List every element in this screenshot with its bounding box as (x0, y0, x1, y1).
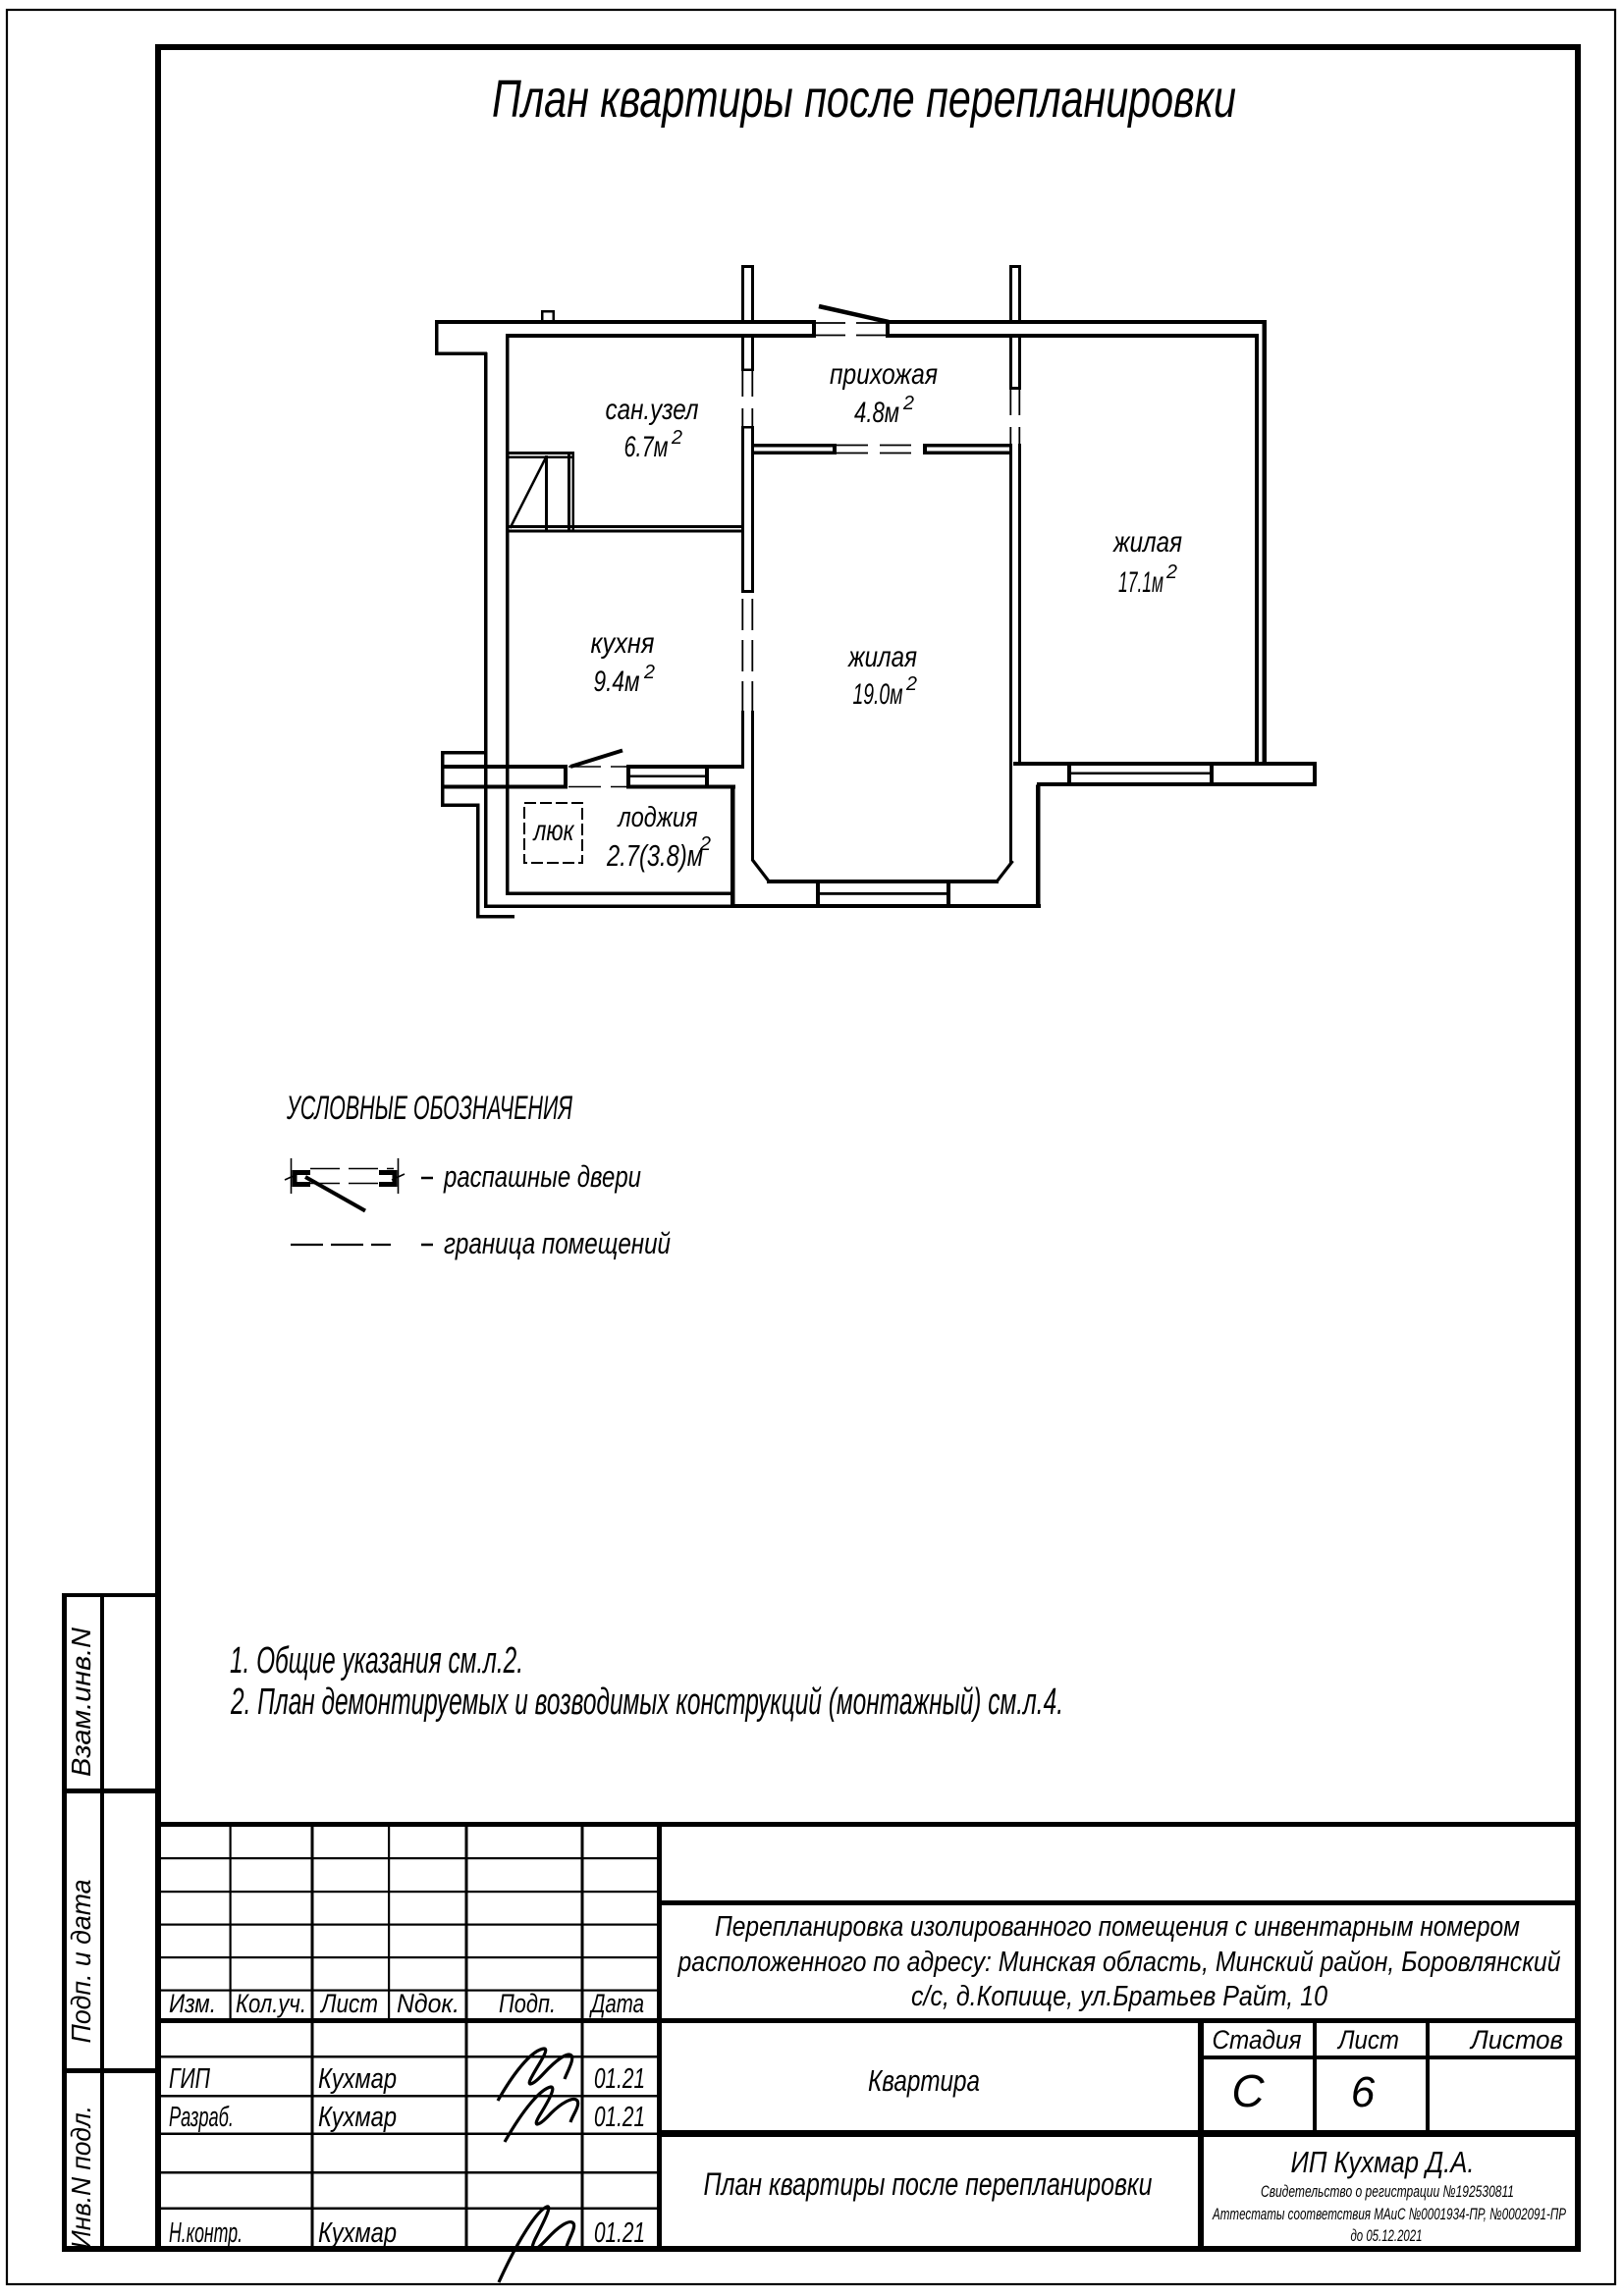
svg-text:01.21: 01.21 (594, 2217, 645, 2249)
svg-text:граница помещений: граница помещений (444, 1226, 671, 1260)
svg-text:План квартиры после перепланир: План квартиры после перепланировки (492, 70, 1236, 129)
svg-text:Н.контр.: Н.контр. (169, 2217, 243, 2249)
svg-text:С: С (1231, 2065, 1265, 2116)
svg-text:01.21: 01.21 (594, 2102, 645, 2133)
svg-text:Дата: Дата (589, 1989, 644, 2018)
svg-text:люк: люк (532, 815, 575, 847)
svg-text:Кухмар: Кухмар (318, 2102, 397, 2133)
svg-text:Кол.уч.: Кол.уч. (236, 1989, 306, 2018)
svg-text:Стадия: Стадия (1213, 2025, 1302, 2055)
svg-text:2: 2 (671, 427, 682, 449)
svg-text:План квартиры после перепланир: План квартиры после перепланировки (704, 2166, 1153, 2202)
svg-text:2. План демонтируемых и возвод: 2. План демонтируемых и возводимых конст… (230, 1682, 1063, 1723)
svg-text:прихожая: прихожая (830, 358, 938, 391)
svg-text:2: 2 (902, 393, 914, 414)
svg-text:Лист: Лист (1336, 2025, 1399, 2055)
svg-text:Подп.: Подп. (499, 1989, 556, 2018)
svg-text:6.7м: 6.7м (624, 431, 669, 463)
svg-text:ГИП: ГИП (169, 2063, 211, 2095)
svg-text:ИП Кухмар Д.А.: ИП Кухмар Д.А. (1291, 2145, 1475, 2179)
svg-text:кухня: кухня (591, 627, 655, 660)
svg-text:4.8м: 4.8м (854, 397, 899, 429)
svg-text:01.21: 01.21 (594, 2063, 645, 2095)
svg-text:2: 2 (905, 673, 917, 695)
svg-text:Взам.инв.N: Взам.инв.N (66, 1627, 96, 1777)
svg-text:Аттестаты соответствия МАиС №0: Аттестаты соответствия МАиС №0001934-ПР,… (1212, 2205, 1566, 2223)
svg-text:Перепланировка изолированного: Перепланировка изолированного помещения … (715, 1911, 1520, 1943)
svg-text:Кухмар: Кухмар (318, 2217, 397, 2249)
svg-text:6: 6 (1351, 2068, 1376, 2116)
svg-text:2: 2 (643, 662, 655, 683)
svg-text:2: 2 (699, 833, 711, 855)
svg-text:2.7(3.8)м: 2.7(3.8)м (606, 838, 703, 873)
svg-text:Лист: Лист (319, 1989, 378, 2018)
svg-text:19.0м: 19.0м (853, 678, 903, 711)
svg-text:Инв.N подл.: Инв.N подл. (66, 2106, 96, 2249)
svg-text:Листов: Листов (1469, 2025, 1563, 2055)
svg-text:2: 2 (1165, 561, 1177, 583)
svg-text:Кухмар: Кухмар (318, 2063, 397, 2095)
svg-text:лоджия: лоджия (617, 802, 698, 833)
svg-text:Изм.: Изм. (169, 1989, 216, 2018)
svg-text:жилая: жилая (846, 641, 917, 673)
svg-text:до 05.12.2021: до 05.12.2021 (1351, 2226, 1423, 2245)
svg-text:Свидетельство о регистрации №1: Свидетельство о регистрации №192530811 (1261, 2182, 1514, 2201)
svg-text:17.1м: 17.1м (1118, 566, 1163, 599)
svg-text:распашные двери: распашные двери (443, 1159, 641, 1194)
svg-text:жилая: жилая (1111, 526, 1182, 559)
svg-text:Разраб.: Разраб. (169, 2102, 234, 2133)
svg-text:сан.узел: сан.узел (606, 394, 699, 426)
svg-text:расположенного по адресу: Минс: расположенного по адресу: Минская област… (677, 1947, 1561, 1978)
svg-text:1. Общие указания см.л.2.: 1. Общие указания см.л.2. (230, 1640, 523, 1682)
svg-text:Nдок.: Nдок. (397, 1989, 460, 2018)
svg-text:9.4м: 9.4м (594, 666, 640, 698)
svg-text:УСЛОВНЫЕ ОБОЗНАЧЕНИЯ: УСЛОВНЫЕ ОБОЗНАЧЕНИЯ (286, 1090, 572, 1127)
svg-text:с/с, д.Копище, ул.Братьев Райт: с/с, д.Копище, ул.Братьев Райт, 10 (911, 1981, 1327, 2012)
svg-text:Подп. и дата: Подп. и дата (66, 1880, 96, 2044)
svg-text:Квартира: Квартира (868, 2063, 980, 2098)
